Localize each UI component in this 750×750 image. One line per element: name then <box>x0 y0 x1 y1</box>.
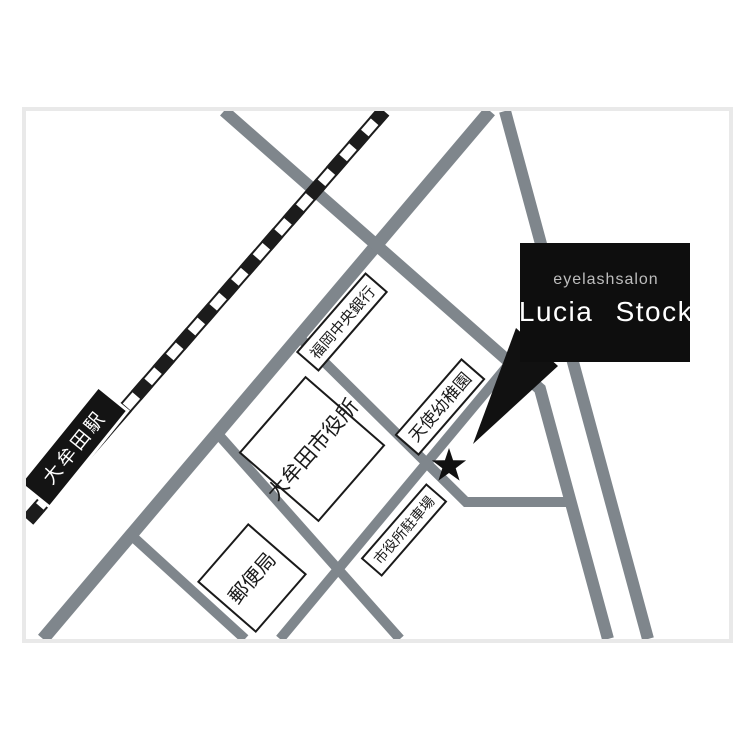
salon-brand-label: eyelashsalon <box>553 271 658 288</box>
access-map: 大牟田駅 大牟田市役所 福岡中央銀行 天使幼稚園 郵便局 市役所駐車場 <box>0 0 750 750</box>
map-canvas: 大牟田駅 大牟田市役所 福岡中央銀行 天使幼稚園 郵便局 市役所駐車場 <box>0 0 750 750</box>
salon-name-label: Lucia Stock <box>519 296 693 327</box>
salon-callout: eyelashsalon Lucia Stock <box>519 243 693 362</box>
